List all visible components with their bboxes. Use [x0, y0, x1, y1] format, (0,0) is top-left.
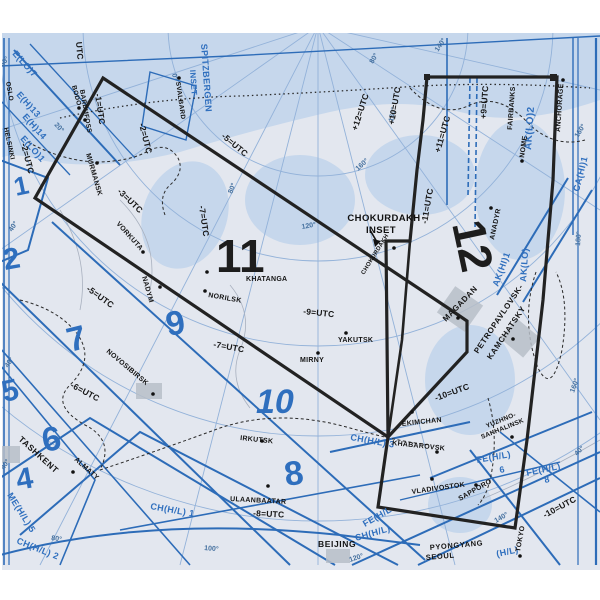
city-label: KHATANGA	[246, 276, 287, 283]
city-label: MIRNY	[300, 357, 324, 364]
city-dot	[141, 250, 145, 254]
utc-offset-label: UTC	[74, 41, 86, 60]
chart-index-map: 60°0°20°40°40°40°80°80°80°100°120°120°14…	[0, 0, 600, 600]
city-dot	[518, 554, 522, 558]
city-dot	[151, 392, 155, 396]
city-dot	[95, 161, 99, 165]
city-label: YAKUTSK	[338, 337, 373, 344]
inset-title-line1: CHOKURDAKH	[347, 213, 420, 224]
utc-offset-label: -8=UTC	[253, 508, 285, 520]
city-dot	[203, 289, 207, 293]
city-dot	[520, 159, 524, 163]
city-dot	[316, 351, 320, 355]
chart-index-page: 60°0°20°40°40°40°80°80°80°100°120°120°14…	[0, 0, 600, 600]
city-dot	[456, 316, 460, 320]
city-dot	[71, 470, 75, 474]
inset-title-line2: INSET	[366, 225, 396, 236]
city-dot	[430, 477, 434, 481]
graticule-label: 80°	[51, 534, 63, 543]
city-dot	[260, 439, 264, 443]
city-dot	[435, 450, 439, 454]
city-dot	[83, 118, 87, 122]
city-dot	[410, 410, 414, 414]
city-dot	[177, 76, 181, 80]
city-dot	[77, 106, 81, 110]
city-dot	[474, 483, 478, 487]
city-dot	[392, 246, 396, 250]
city-dot	[266, 484, 270, 488]
city-label: BEIJING	[318, 539, 356, 549]
city-dot	[561, 78, 565, 82]
city-dot	[489, 206, 493, 210]
city-dot	[511, 337, 515, 341]
panel-number: 11	[216, 230, 265, 282]
city-dot	[344, 331, 348, 335]
city-dot	[205, 270, 209, 274]
chart-series-label: INSET	[188, 70, 199, 96]
graticule-label: 180°	[574, 231, 583, 246]
panel-number: 10	[256, 383, 294, 421]
city-dot	[158, 285, 162, 289]
graticule-label: 100°	[204, 544, 219, 553]
city-dot	[510, 435, 514, 439]
